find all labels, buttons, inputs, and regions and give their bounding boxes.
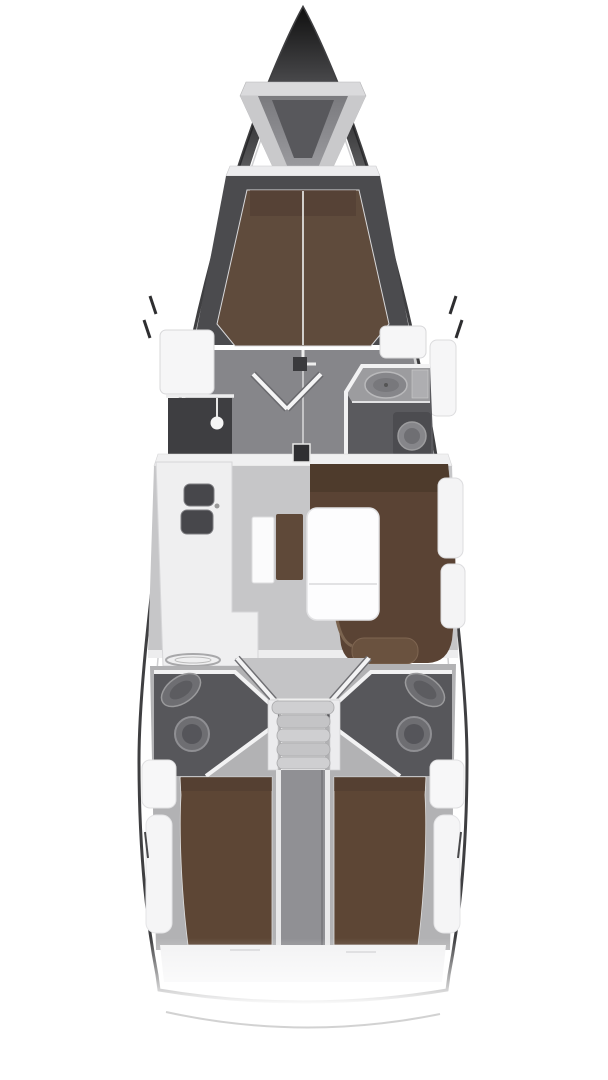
settee-backrest <box>310 464 451 492</box>
step-tread-4 <box>277 743 330 756</box>
port-shelf-panel <box>160 330 214 394</box>
nav-seat <box>276 514 303 580</box>
engine-rail-starboard <box>325 770 330 950</box>
galley-sink-icon-1 <box>184 484 214 506</box>
floor-plan-canvas <box>0 0 608 1080</box>
galley-faucet-icon <box>215 504 220 509</box>
port-hull-window-panel-1 <box>142 760 176 808</box>
forward-head-vanity <box>412 370 428 398</box>
mast-base <box>293 444 310 462</box>
companionway-steps <box>268 700 340 770</box>
step-tread-5 <box>277 757 330 769</box>
aft-berth-starboard <box>334 777 426 945</box>
windlass-shelf <box>240 82 366 96</box>
starboard-hull-shelf-2 <box>441 564 465 628</box>
salon-table <box>307 508 379 620</box>
chainplate-mark-starboard-2 <box>456 320 462 338</box>
step-tread-3 <box>277 729 330 742</box>
chainplate-mark-port-2 <box>144 320 150 338</box>
door-cabinet <box>293 357 307 371</box>
engine-compartment <box>281 770 325 950</box>
aft-berth-starboard-shadow <box>334 777 425 791</box>
starboard-hull-shelf-1 <box>438 478 463 558</box>
forepeak-bulkhead <box>226 166 380 176</box>
galley-sink-icon-2 <box>181 510 213 534</box>
stern-platform-arc <box>166 1012 440 1028</box>
engine-rail-port <box>276 770 281 950</box>
forward-head <box>346 366 434 462</box>
aft-berth-port <box>180 777 272 945</box>
chainplate-mark-port-1 <box>150 296 156 314</box>
stern-fade <box>118 938 490 1008</box>
starboard-shelf-panel <box>380 326 426 358</box>
starboard-hull-window-panel-2 <box>434 815 460 933</box>
aft-berth-port-shadow <box>181 777 272 791</box>
forward-head-toilet-bowl <box>404 428 420 444</box>
starboard-deck-panel <box>430 340 456 416</box>
step-tread-1 <box>272 701 334 714</box>
wardrobe <box>166 396 234 458</box>
yacht-floor-plan <box>0 0 608 1080</box>
port-hull-window-panel-2 <box>146 815 172 933</box>
wardrobe-body <box>168 398 232 458</box>
aft-head-starboard-toilet-bowl <box>404 724 424 744</box>
lamp-icon <box>211 417 224 430</box>
chart-table <box>252 517 274 583</box>
aft-head-port-toilet-bowl <box>182 724 202 744</box>
forward-head-drain <box>384 383 388 387</box>
starboard-hull-window-panel-1 <box>430 760 464 808</box>
step-tread-2 <box>277 715 330 728</box>
chainplate-mark-starboard-1 <box>450 296 456 314</box>
